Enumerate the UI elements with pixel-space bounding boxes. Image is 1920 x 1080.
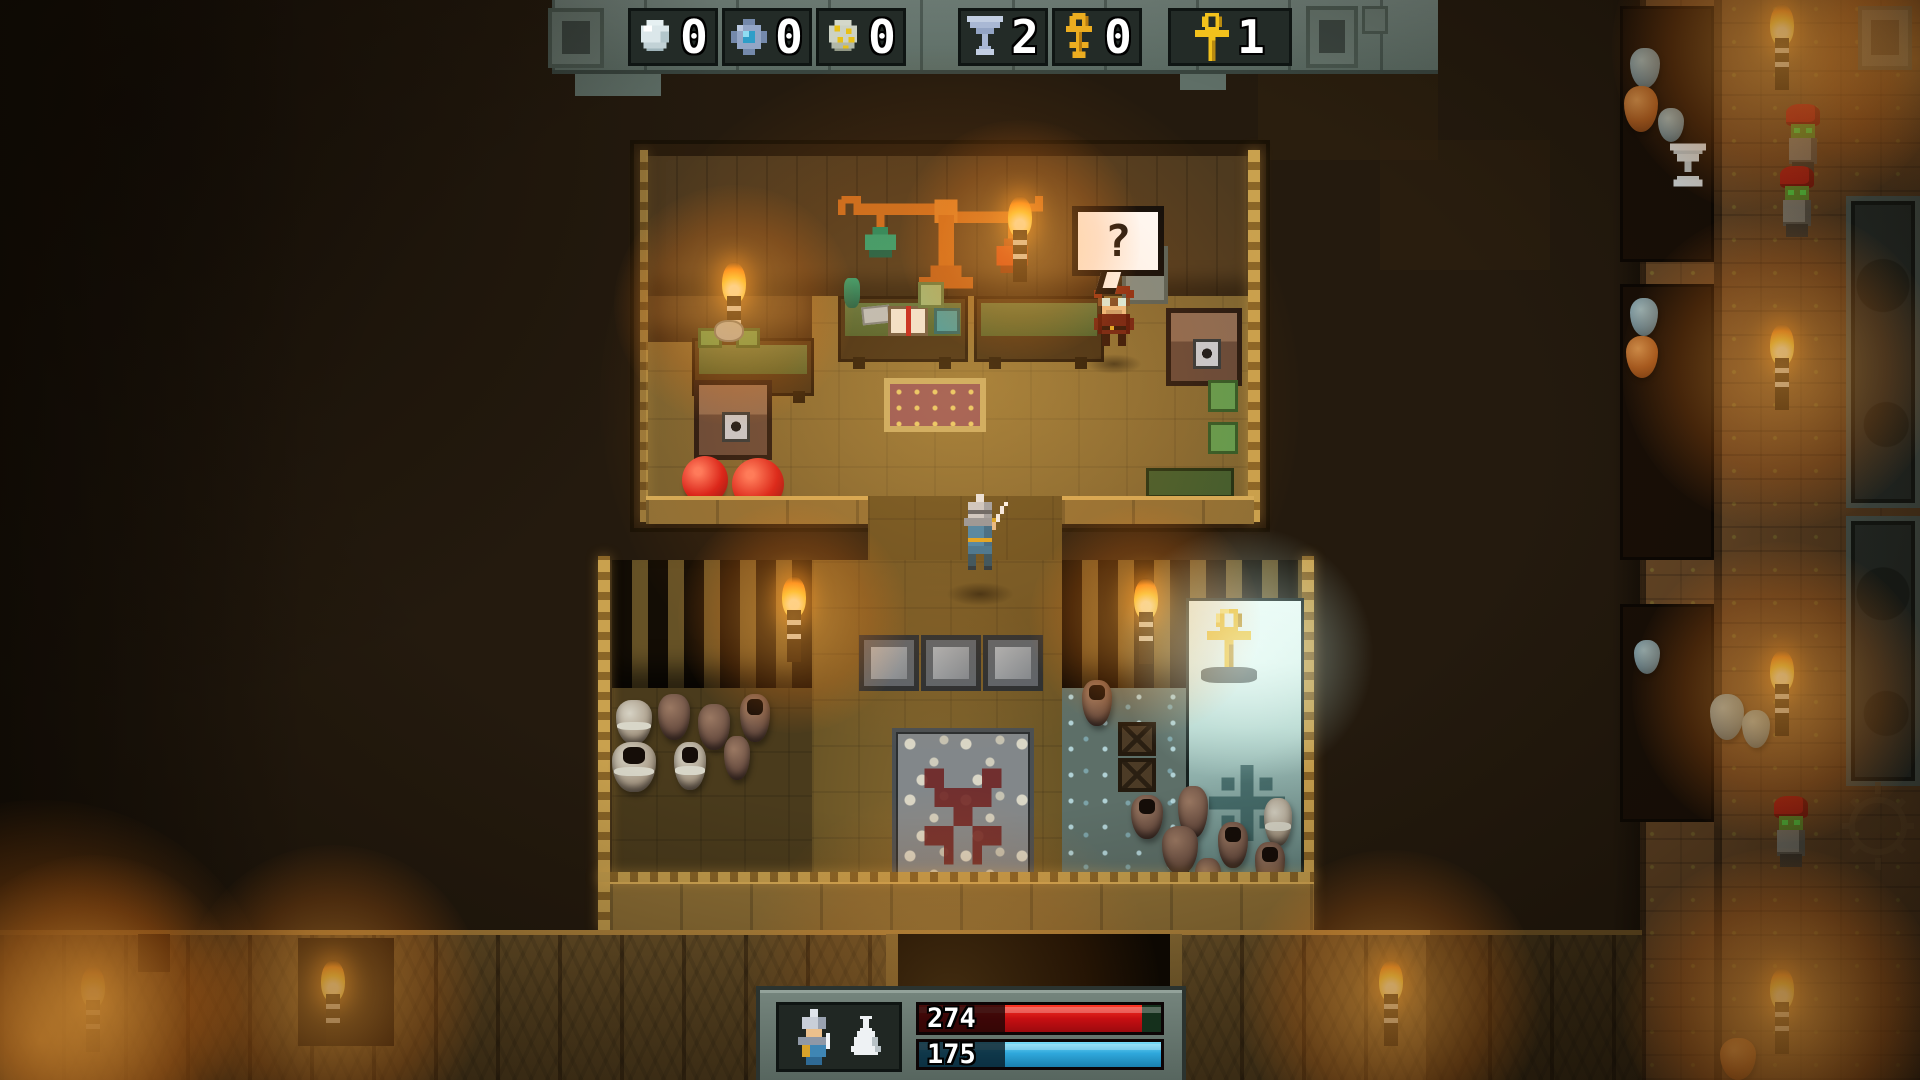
alcove-room <box>1620 604 1714 822</box>
hud-lives-slot: 1 <box>1168 8 1292 66</box>
hud-currency-slot: 0 <box>816 8 906 66</box>
mana-value: 175 <box>927 1041 976 1068</box>
gold-ore-icon <box>826 20 860 54</box>
gold-key-icon <box>1062 13 1096 61</box>
health-label: 274 <box>919 1005 1005 1032</box>
corridor-wall-seam <box>1714 0 1722 1080</box>
wall-torch <box>1764 650 1800 740</box>
bottom-wall-shade <box>1430 930 1642 1080</box>
gold-key-count: 0 <box>1104 14 1132 60</box>
machine-panel <box>1846 196 1920 508</box>
gray-sack <box>714 320 744 342</box>
merchant-sprite <box>1090 286 1138 366</box>
player-character[interactable] <box>952 494 1008 598</box>
wall-torch <box>1128 578 1164 668</box>
health-value: 274 <box>927 1005 976 1032</box>
flask-icon <box>848 1010 884 1064</box>
wall-torch <box>75 966 111 1056</box>
ore-count: 0 <box>680 14 708 60</box>
wall-torch <box>1002 196 1038 286</box>
wall-torch <box>315 960 351 1050</box>
chalice-item[interactable] <box>1670 140 1706 190</box>
stone-plate <box>1306 6 1358 68</box>
pressure-plate[interactable] <box>926 640 976 686</box>
speech-bubble: ? <box>1072 206 1164 276</box>
green-bottle <box>844 278 860 308</box>
shop-table <box>974 296 1104 362</box>
room-bottom-trim <box>598 872 1314 882</box>
green-satchel <box>918 282 944 308</box>
crystal-count: 0 <box>775 14 803 60</box>
altar-pedestal <box>1201 667 1257 683</box>
room-bottom-wall <box>610 880 1314 934</box>
hud-currency-slot: 0 <box>722 8 812 66</box>
machine-panel <box>1846 516 1920 786</box>
wall-torch <box>776 576 812 666</box>
top-wall-tab <box>575 74 661 96</box>
chest[interactable] <box>1166 308 1242 386</box>
zombie-enemy[interactable] <box>1774 166 1820 244</box>
hud-key-slot: 2 <box>958 8 1048 66</box>
gear-carving <box>1836 762 1920 890</box>
pressure-plate[interactable] <box>988 640 1038 686</box>
game-viewport: ? 0 0 0 2 0 1 <box>0 0 1920 1080</box>
merchant-npc[interactable] <box>1090 286 1138 368</box>
green-chair <box>1208 422 1238 454</box>
ankh-icon <box>1195 13 1229 61</box>
health-bar: 274 <box>916 1002 1164 1035</box>
hud-currency-slot: 0 <box>628 8 718 66</box>
knight-sprite <box>952 494 1008 598</box>
top-wall-tab <box>1180 74 1226 90</box>
silver-key-icon <box>967 15 1003 59</box>
player-portrait-box <box>776 1002 902 1072</box>
chest[interactable] <box>694 380 772 460</box>
crystal-icon <box>731 19 767 55</box>
ankh-statue-icon <box>1207 609 1251 671</box>
ore-icon <box>638 20 672 54</box>
wall-torch <box>1764 968 1800 1058</box>
book-ribbon <box>906 306 911 336</box>
speech-bubble-text: ? <box>1105 216 1132 267</box>
wall-step <box>1380 140 1550 270</box>
crate[interactable] <box>1118 758 1156 792</box>
zombie-enemy[interactable] <box>1768 796 1814 872</box>
mana-label: 175 <box>919 1042 1005 1067</box>
paper-stack <box>861 305 891 326</box>
stone-plate <box>548 8 604 68</box>
knight-portrait-icon <box>794 1009 834 1065</box>
wall-niche <box>138 934 170 972</box>
shop-bottom-wall <box>1062 496 1254 524</box>
shop-right-trim <box>1248 150 1260 522</box>
rune-symbol <box>896 732 1030 882</box>
wall-torch <box>1373 960 1409 1050</box>
rug <box>884 378 986 432</box>
rune-mosaic <box>892 728 1034 886</box>
hud-key-slot: 0 <box>1052 8 1142 66</box>
lives-count: 1 <box>1237 14 1265 60</box>
mana-bar: 175 <box>916 1039 1164 1070</box>
teal-book <box>934 308 960 334</box>
pressure-plate[interactable] <box>864 640 914 686</box>
stone-plate <box>1858 6 1912 70</box>
gold-ore-count: 0 <box>868 14 896 60</box>
wall-torch <box>1764 324 1800 414</box>
crate[interactable] <box>1118 722 1156 756</box>
shop-bottom-wall <box>646 496 868 524</box>
green-chair <box>1208 380 1238 412</box>
wall-torch <box>1764 4 1800 94</box>
silver-key-count: 2 <box>1011 14 1039 60</box>
green-bench <box>1146 468 1234 498</box>
stone-chip <box>1362 6 1388 34</box>
chalice-icon <box>1670 140 1706 190</box>
shop-left-trim <box>640 150 648 522</box>
